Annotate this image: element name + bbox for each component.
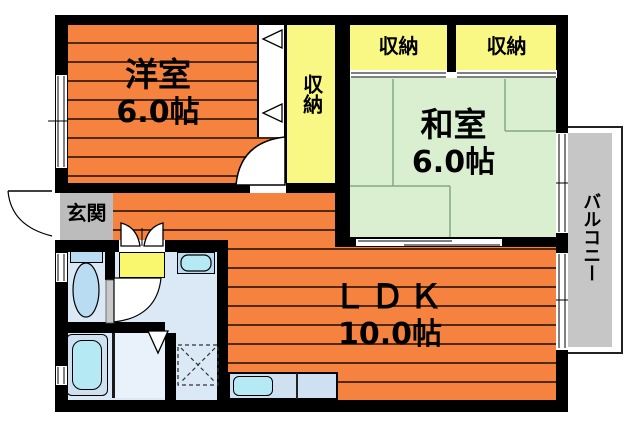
- wall-top: [55, 15, 568, 25]
- entrance-door-arc: [8, 191, 52, 236]
- wall-bottom: [55, 400, 568, 412]
- closet-left-label: 収納: [350, 35, 447, 59]
- wall-toilet-bath: [55, 322, 165, 333]
- floor-plan: 洋室 6.0帖 和室 6.0帖 ＬＤＫ 10.0帖 玄関 収納 収納 収納 バル…: [0, 0, 640, 426]
- closet-left-track: [350, 70, 447, 78]
- kitchen-counter-divider: [296, 373, 298, 399]
- doorway-washroom: [119, 240, 165, 252]
- bath-partition-line: [112, 333, 115, 398]
- sliding-door-japanese-ldk: [356, 239, 502, 246]
- washbasin-unit: [177, 252, 215, 274]
- wall-toilet-east: [105, 252, 115, 280]
- japanese-room-label: 和室 6.0帖: [352, 106, 555, 180]
- ldk-size: 10.0帖: [250, 317, 530, 352]
- window-ldk-balcony: [556, 253, 568, 350]
- western-room-name: 洋室: [58, 56, 258, 95]
- window-toilet-west: [56, 253, 67, 282]
- ldk-label: ＬＤＫ 10.0帖: [250, 278, 530, 352]
- japanese-room-name: 和室: [352, 106, 555, 145]
- kitchen-sink: [233, 376, 273, 396]
- wall-shower-pan: [165, 333, 176, 400]
- wall-closet-divider: [447, 25, 456, 72]
- closet-right-track: [456, 70, 557, 78]
- western-room-label: 洋室 6.0帖: [58, 56, 258, 130]
- closet-middle-label: 収納: [299, 74, 323, 114]
- balcony-label: バルコニー: [580, 192, 601, 282]
- wall-closet-middle-east: [335, 25, 350, 247]
- shoe-cabinet: [119, 252, 165, 278]
- entrance-label: 玄関: [60, 202, 113, 226]
- bathtub-inner: [72, 340, 102, 390]
- wall-washroom-east: [217, 240, 228, 400]
- wall-closet-middle-west-line: [284, 25, 287, 183]
- doorway-western: [250, 183, 286, 193]
- ldk-name: ＬＤＫ: [250, 278, 530, 317]
- wall-western-south: [55, 183, 350, 193]
- window-japanese-balcony: [556, 133, 568, 233]
- closet-right-label: 収納: [456, 35, 557, 59]
- closet-folding-door-strip: [257, 25, 286, 137]
- western-room-size: 6.0帖: [58, 95, 258, 130]
- window-bath-west: [56, 366, 67, 385]
- japanese-room-size: 6.0帖: [352, 145, 555, 180]
- shower-room-floor: [115, 333, 165, 398]
